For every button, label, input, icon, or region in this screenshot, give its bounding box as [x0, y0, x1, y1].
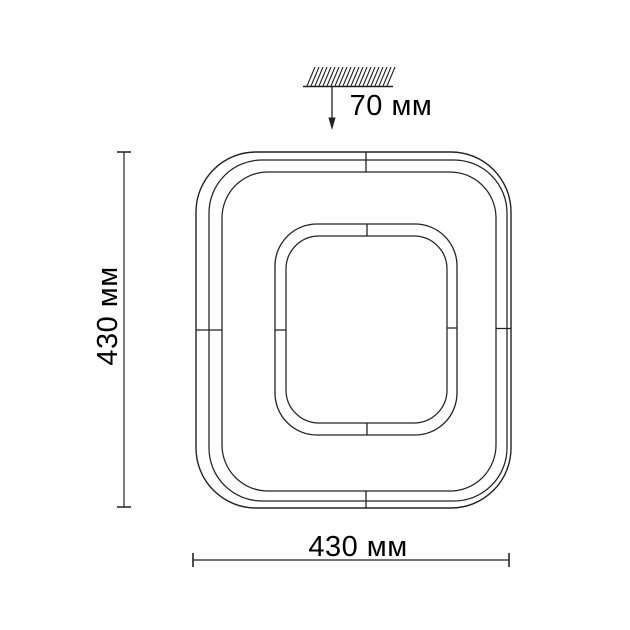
fixture-panel-seams: [275, 224, 457, 435]
fixture-ring-inner-edge: [222, 172, 496, 491]
fixture-ring-seams: [196, 152, 511, 508]
fixture-outer-back-edge: [196, 152, 511, 508]
fixture-center-panel-inner-edge: [286, 236, 447, 423]
dimension-diagram: 70 мм 430 мм 430 мм: [0, 0, 630, 630]
fixture-front-view: [196, 152, 511, 508]
fixture-outer-front-edge: [209, 160, 507, 501]
technical-drawing-canvas: 70 мм 430 мм 430 мм: [0, 0, 630, 630]
ceiling-offset-label: 70 мм: [350, 90, 433, 122]
width-dimension-label: 430 мм: [308, 531, 407, 563]
fixture-center-panel-outer-edge: [275, 224, 457, 435]
ceiling-hatch-icon: [307, 67, 395, 86]
offset-arrow-icon: [328, 118, 335, 131]
height-dimension-label: 430 мм: [92, 266, 124, 365]
